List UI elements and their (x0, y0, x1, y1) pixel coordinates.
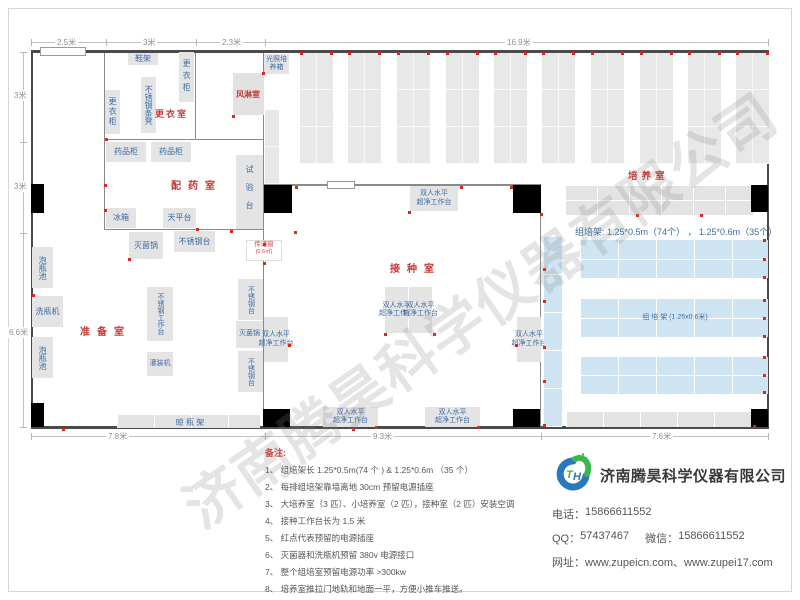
power-outlet-dot (196, 228, 199, 231)
note-item: 4、 接种工作台长为 1.5 米 (265, 515, 555, 527)
qq-value: 57437467 (580, 530, 629, 546)
culture-rack-strip (640, 53, 673, 164)
equip-light-incubator: 光照培养箱 (264, 54, 289, 74)
phone-value: 15866611552 (585, 506, 651, 522)
wall-changing-airshower (195, 53, 196, 140)
clean-bench-top: 双人水平超净工作台 (410, 186, 458, 211)
equip-sterilizer-1: 灭菌锅 (129, 232, 163, 259)
equip-locker-right: 更衣柜 (179, 52, 194, 102)
equip-filling-machine: 灌装机 (147, 352, 173, 376)
company-web-line: 网址： www.zupeicn.com、www.zupei17.com (552, 554, 797, 570)
dim-top-3: 2.3米 (220, 37, 243, 48)
dim-left-3: 6.6米 (7, 327, 30, 338)
qq-label: QQ： (552, 530, 580, 546)
equip-balance-table: 天平台 (163, 208, 196, 228)
dim-bottom-2: 9.3米 (371, 431, 394, 442)
clean-bench-bottom-left: 双人水平超净工作台 (323, 407, 378, 427)
equip-steel-table-r1: 不锈钢台 (238, 279, 263, 320)
power-outlet-dot (763, 356, 766, 359)
company-name: 济南腾昊科学仪器有限公司 (600, 465, 786, 486)
power-outlet-dot (460, 186, 463, 189)
room-label-dispensing: 配药室 (171, 177, 222, 192)
culture-rack-strip (300, 53, 333, 164)
equip-fridge: 冰箱 (106, 208, 136, 228)
culture-rack-band-top (565, 186, 753, 215)
power-outlet-dot (300, 52, 303, 55)
clean-bench-wall-left: 双人水平超净工作台 (264, 317, 288, 362)
wall-changing-dispensing (104, 139, 264, 140)
power-outlet-dot (543, 268, 546, 271)
dim-bottom-3: 7.6米 (650, 431, 673, 442)
power-outlet-dot (640, 52, 643, 55)
window-top-left (40, 47, 86, 56)
power-outlet-dot (763, 299, 766, 302)
power-outlet-dot (375, 426, 378, 429)
power-outlet-dot (763, 374, 766, 377)
power-outlet-dot (572, 52, 575, 55)
note-item: 3、 大培养室（3 匹）、小培养室（2 匹），接种室（2 匹）安装空调 (265, 498, 555, 510)
room-label-air-shower: 风淋室 (236, 89, 260, 100)
room-label-culture: 培养室 (628, 168, 669, 182)
power-outlet-dot (295, 186, 298, 189)
company-phone-line: 电话： 15866611552 (552, 506, 797, 522)
clean-bench-bottom-right: 双人水平超净工作台 (425, 407, 480, 427)
culture-rack-strip (542, 53, 575, 164)
blue-rack-strip (544, 237, 562, 427)
note-item: 7、 整个组培室预留电源功率 >300kw (265, 566, 555, 578)
equip-bottle-pool-1: 泡瓶池 (32, 247, 53, 288)
power-outlet-dot (540, 213, 543, 216)
power-outlet-dot (766, 52, 769, 55)
equip-steel-table-top: 不锈钢台 (174, 231, 215, 252)
equip-bottle-pool-2: 泡瓶池 (32, 337, 53, 378)
equip-medicine-cabinet-2: 药品柜 (151, 142, 191, 162)
power-outlet-dot (62, 428, 65, 431)
floor-plan-canvas: 2.5米 3米 2.3米 16.9米 3米 3米 6.6米 7.8米 9.3米 … (0, 0, 800, 600)
equip-steel-worktable: 不锈钢工作台 (147, 287, 173, 341)
wall-dispensing-prep (104, 229, 264, 230)
power-outlet-dot (510, 186, 513, 189)
power-outlet-dot (543, 300, 546, 303)
power-outlet-dot (378, 52, 381, 55)
notes-title: 备注: (265, 446, 555, 459)
power-outlet-dot (105, 138, 108, 141)
wall-corridor (104, 53, 105, 230)
equip-drying-rack-label: 晾 瓶 架 (160, 417, 220, 428)
power-outlet-dot (288, 344, 291, 347)
power-outlet-dot (515, 344, 518, 347)
power-outlet-dot (263, 243, 266, 246)
power-outlet-dot (433, 333, 436, 336)
power-outlet-dot (543, 380, 546, 383)
wall-inoculation-culture (540, 186, 541, 427)
note-item: 5、 红点代表预留的电源插座 (265, 532, 555, 544)
note-item: 6、 灭菌器和洗瓶机预留 380v 电源接口 (265, 549, 555, 561)
power-outlet-dot (408, 211, 411, 214)
web-value: www.zupeicn.com、www.zupei17.com (585, 554, 773, 570)
power-outlet-dot (763, 317, 766, 320)
culture-rack-strip (348, 53, 381, 164)
culture-rack-strip (494, 53, 527, 164)
power-outlet-dot (352, 428, 355, 431)
room-label-changing: 更衣室 (155, 107, 188, 120)
culture-rack-strip (446, 53, 479, 164)
company-logo-icon: T H (552, 452, 594, 498)
blue-rack-label: 组 培 架 (1.25x0.6米) (610, 312, 740, 322)
power-outlet-dot (32, 294, 35, 297)
culture-rack-strip-narrow (265, 110, 279, 184)
culture-rack-band-bottom (566, 412, 753, 427)
power-outlet-dot (763, 276, 766, 279)
power-outlet-dot (104, 209, 107, 212)
equip-locker-left: 更衣柜 (105, 90, 120, 134)
pass-window-size: (0.6㎡) (247, 249, 281, 256)
power-outlet-dot (427, 52, 430, 55)
door-bottom-left (31, 403, 44, 427)
culture-rack-spec: 组培架: 1.25*0.5m（74个） ， 1.25*0.6m（35个） (575, 225, 777, 238)
notes-block: 备注: 1、 组培架长 1.25*0.5m(74 个 ) & 1.25*0.6m… (265, 446, 555, 600)
power-outlet-dot (621, 52, 624, 55)
door-bottom-prep (263, 409, 290, 427)
power-outlet-dot (262, 72, 265, 75)
power-outlet-dot (718, 52, 721, 55)
dim-line-left (23, 52, 24, 428)
dim-bottom-1: 7.8米 (106, 431, 129, 442)
power-outlet-dot (753, 425, 756, 428)
culture-rack-strip (591, 53, 624, 164)
note-item: 2、 每排组培架靠墙离地 30cm 预留电源插座 (265, 481, 555, 493)
equip-shoe-rack: 鞋架 (128, 53, 158, 65)
dim-top-4: 16.9米 (505, 37, 533, 48)
power-outlet-dot (542, 52, 545, 55)
power-outlet-dot (524, 52, 527, 55)
company-brand: T H 济南腾昊科学仪器有限公司 (552, 452, 797, 498)
power-outlet-dot (543, 424, 546, 427)
power-outlet-dot (263, 262, 266, 265)
blue-rack-band-a (580, 240, 768, 278)
power-outlet-dot (477, 426, 480, 429)
power-outlet-dot (763, 239, 766, 242)
dim-top-2: 3米 (141, 37, 157, 48)
company-qq-line: QQ： 57437467 微信： 15866611552 (552, 530, 797, 546)
company-block: T H 济南腾昊科学仪器有限公司 电话： 15866611552 QQ： 574… (552, 452, 797, 570)
web-label: 网址： (552, 554, 585, 570)
power-outlet-dot (294, 231, 297, 234)
power-outlet-dot (736, 52, 739, 55)
equip-bottle-washer: 洗瓶机 (32, 296, 63, 327)
power-outlet-dot (476, 52, 479, 55)
power-outlet-dot (591, 52, 594, 55)
power-outlet-dot (104, 184, 107, 187)
equip-steel-bench: 不锈钢条凳 (141, 77, 156, 133)
power-outlet-dot (397, 52, 400, 55)
dim-left-2: 3米 (12, 181, 28, 192)
power-outlet-dot (688, 52, 691, 55)
power-outlet-dot (543, 346, 546, 349)
power-outlet-dot (232, 115, 235, 118)
power-outlet-dot (700, 214, 703, 217)
power-outlet-dot (330, 52, 333, 55)
culture-rack-strip (736, 53, 769, 164)
wechat-value: 15866611552 (678, 530, 744, 546)
door-prep-left (31, 184, 44, 213)
door-inoculation-left (264, 185, 292, 213)
note-item: 1、 组培架长 1.25*0.5m(74 个 ) & 1.25*0.6m （35… (265, 464, 555, 476)
equip-test-bench: 试验台 (236, 155, 263, 229)
clean-bench-mid-right: 双人水平超净工作台 (409, 287, 432, 333)
wall-culture-inoculation (264, 184, 541, 186)
power-outlet-dot (446, 52, 449, 55)
door-culture-right (751, 185, 768, 212)
power-outlet-dot (494, 52, 497, 55)
power-outlet-dot (763, 258, 766, 261)
power-outlet-dot (384, 333, 387, 336)
clean-bench-wall-right: 双人水平超净工作台 (517, 317, 541, 362)
svg-text:H: H (573, 471, 582, 483)
room-label-inoculation: 接种室 (390, 260, 441, 275)
culture-rack-strip (688, 53, 721, 164)
note-item: 8、 培养室推拉门地轨和地面一平，方便小推车推送。 (265, 583, 555, 595)
power-outlet-dot (763, 335, 766, 338)
power-outlet-dot (230, 230, 233, 233)
power-outlet-dot (670, 52, 673, 55)
culture-rack-strip (397, 53, 430, 164)
equip-steel-table-r2: 不锈钢台 (238, 351, 263, 392)
power-outlet-dot (128, 258, 131, 261)
power-outlet-dot (348, 52, 351, 55)
door-bottom-inoculation (513, 409, 540, 427)
power-outlet-dot (636, 214, 639, 217)
wechat-label: 微信： (645, 530, 678, 546)
blue-rack-band-c (580, 357, 768, 394)
phone-label: 电话： (552, 506, 585, 522)
door-inoculation-right (513, 185, 541, 213)
room-label-prep: 准备室 (80, 323, 131, 338)
equip-medicine-cabinet-1: 药品柜 (106, 142, 146, 162)
window-inoculation (327, 181, 355, 189)
dim-left-1: 3米 (12, 90, 28, 101)
power-outlet-dot (763, 391, 766, 394)
